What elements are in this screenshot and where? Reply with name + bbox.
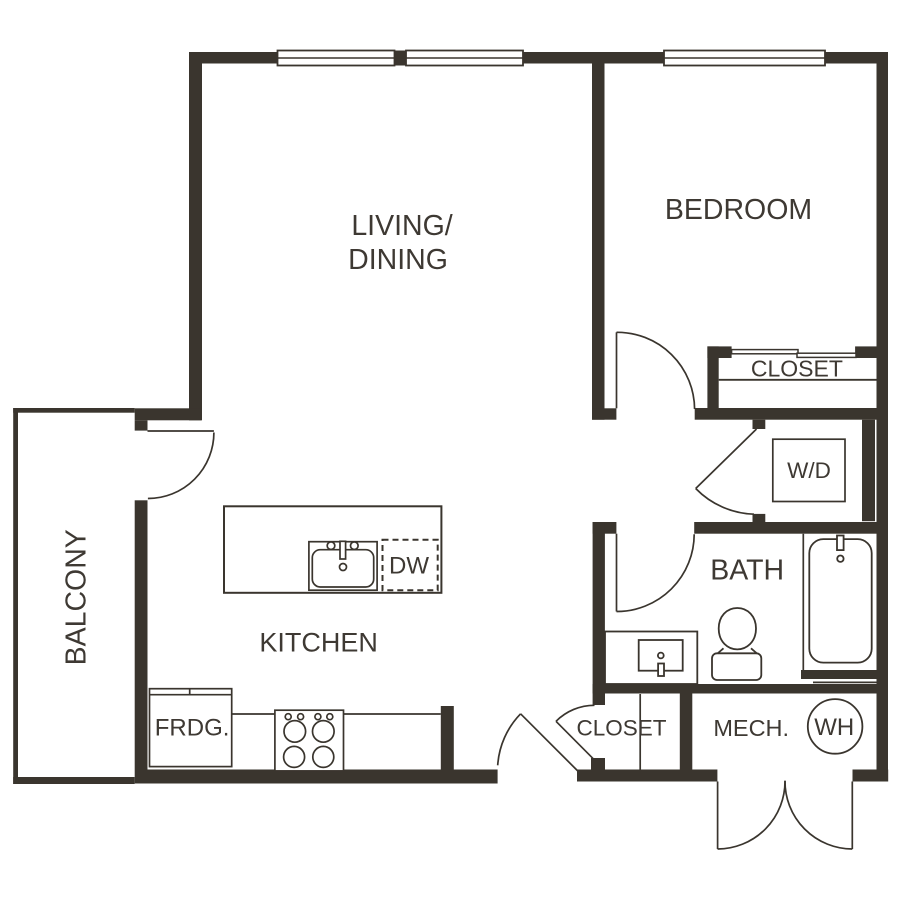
svg-text:CLOSET: CLOSET	[576, 716, 666, 741]
svg-text:CLOSET: CLOSET	[751, 356, 843, 382]
svg-text:DW: DW	[389, 553, 429, 580]
svg-text:WH: WH	[814, 714, 854, 741]
svg-text:LIVING/: LIVING/	[351, 210, 452, 242]
svg-text:BATH: BATH	[710, 554, 784, 586]
svg-text:BEDROOM: BEDROOM	[665, 194, 812, 226]
svg-text:DINING: DINING	[348, 244, 448, 276]
svg-text:W/D: W/D	[787, 458, 831, 483]
svg-text:FRDG.: FRDG.	[155, 715, 230, 742]
svg-text:BALCONY: BALCONY	[61, 529, 93, 665]
svg-text:KITCHEN: KITCHEN	[259, 628, 378, 658]
svg-text:MECH.: MECH.	[713, 715, 789, 741]
